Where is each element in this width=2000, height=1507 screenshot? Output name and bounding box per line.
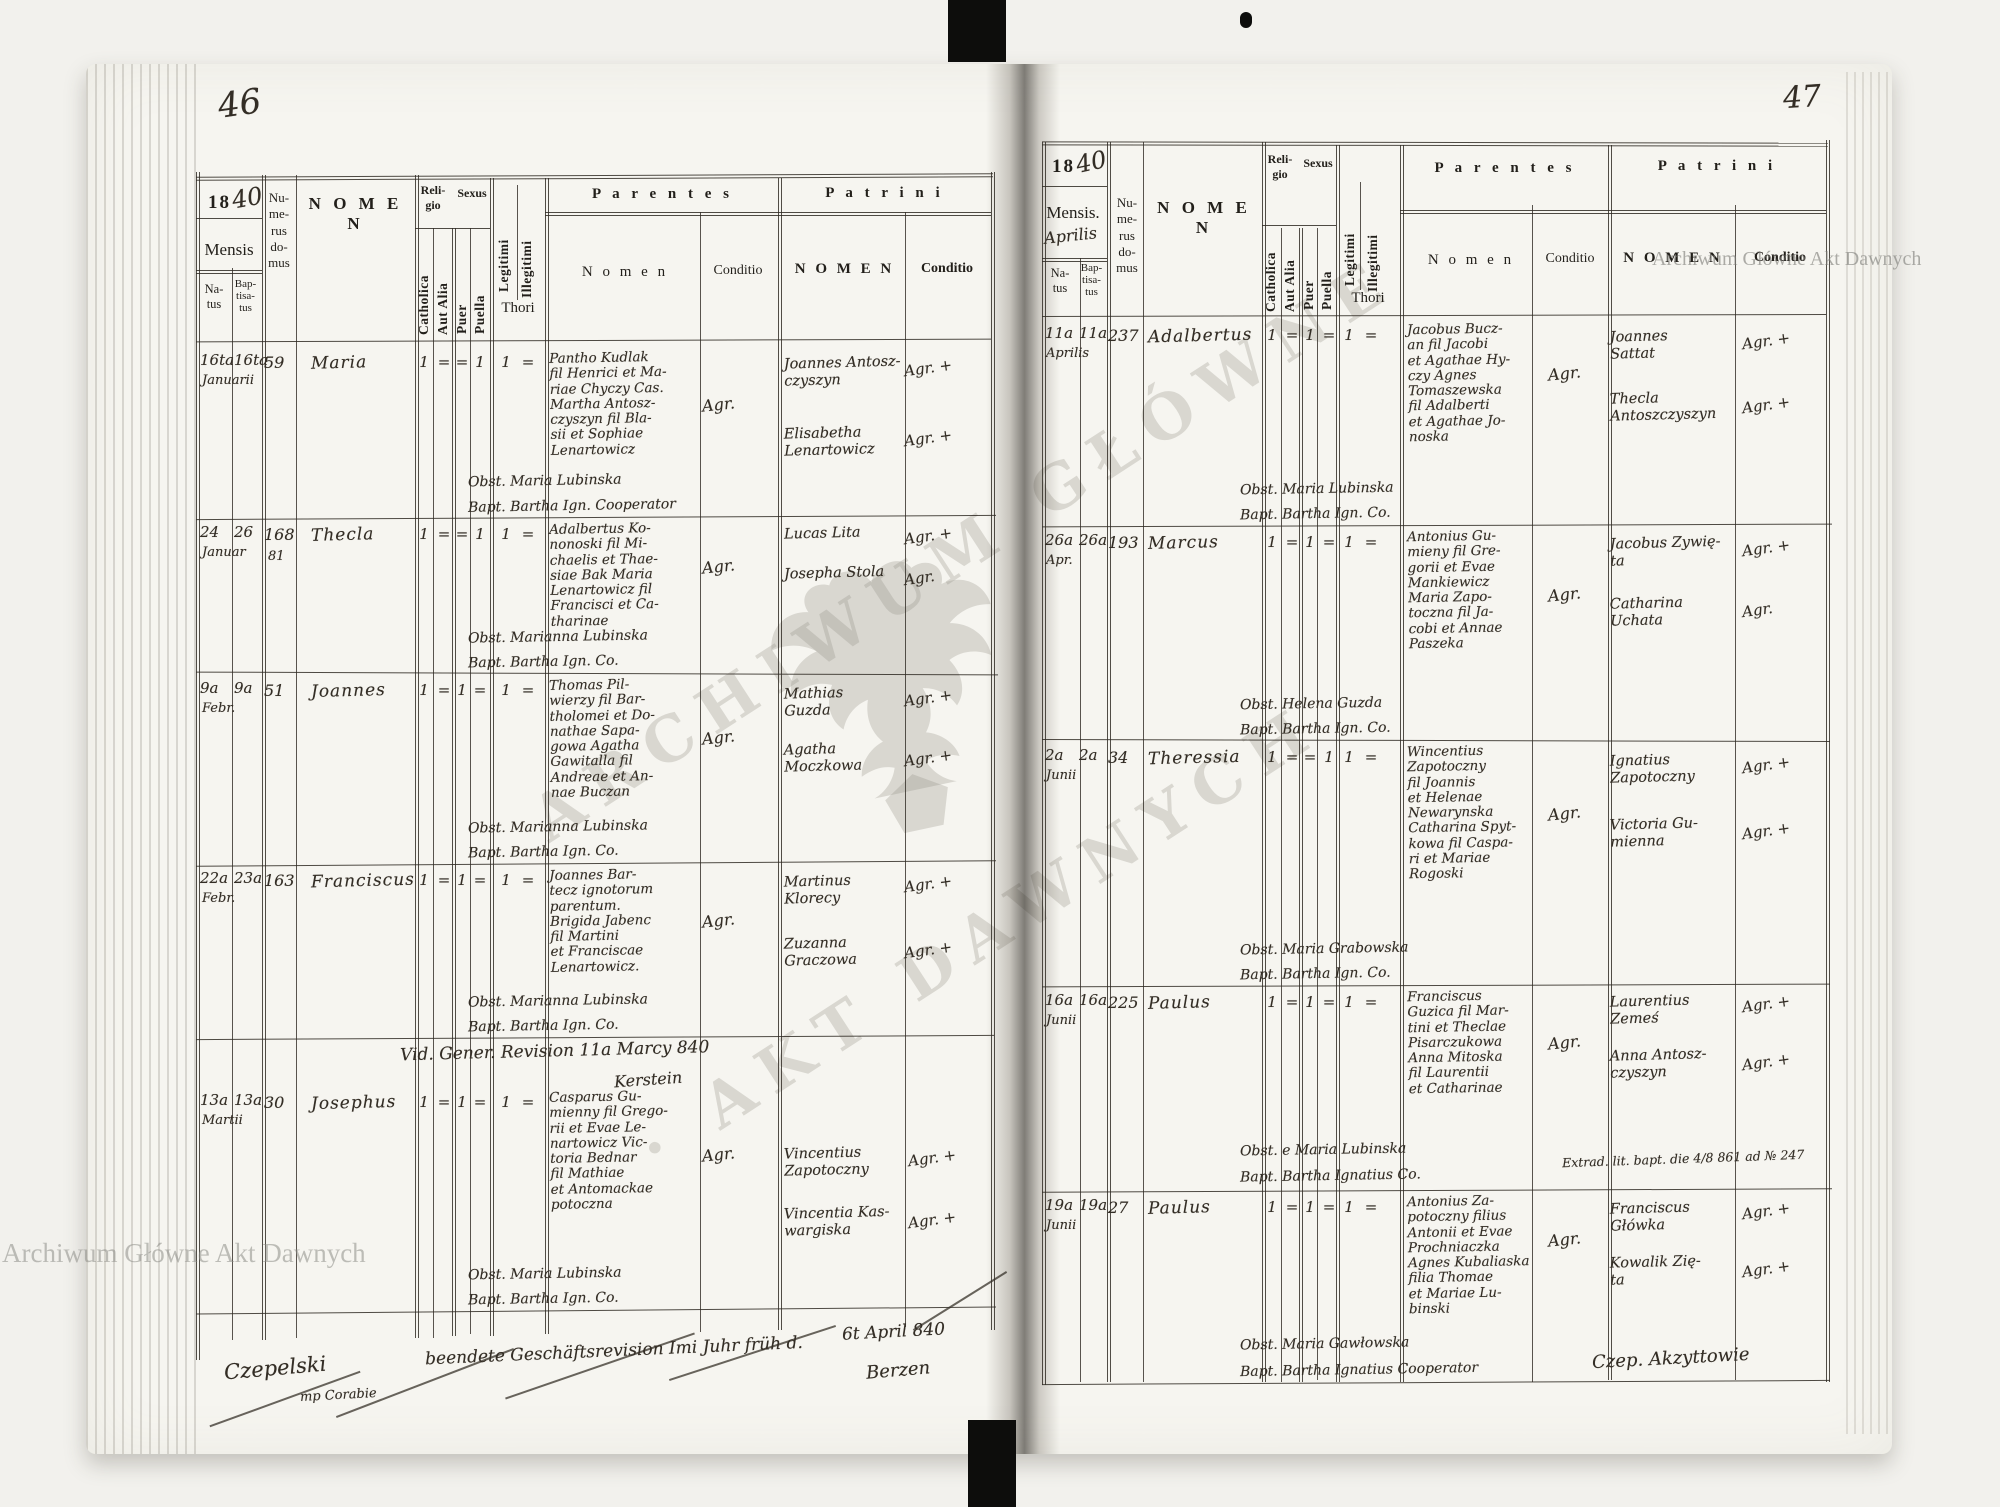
table-rule (517, 185, 518, 300)
month: Januar (202, 545, 246, 560)
month: Junii (1046, 768, 1076, 783)
baptism-date: 2a (1079, 746, 1098, 764)
mark-aut-alia: = (436, 681, 452, 699)
thori-label-right: Thori (1338, 290, 1398, 307)
parents-entry: Jacobus Bucz- an fil Jacobi et Agathae H… (1407, 321, 1547, 445)
mark-catholica: 1 (1264, 993, 1280, 1011)
condition-entry: Agr. (701, 393, 736, 415)
condition-entry: Agr. (701, 555, 736, 577)
table-rule (196, 270, 262, 274)
child-name: Josephus (311, 1092, 397, 1114)
mark-puer: = (1302, 748, 1318, 766)
mark-legitimi: 1 (1341, 748, 1357, 766)
godparent-condition: Agr. + (903, 872, 953, 897)
mark-aut-alia: = (436, 1093, 452, 1111)
sexus-label-right: Sexus (1297, 156, 1339, 171)
baptisatus-label-left: Bap- tisa- tus (230, 278, 261, 314)
baptism-date: 13a (234, 1091, 262, 1109)
natus-label-left: Na- tus (198, 282, 230, 312)
godparent-name: Vincentia Kas- wargiska (784, 1203, 910, 1240)
godparent-condition: Agr. (1741, 599, 1774, 621)
baptizer-note: Bapt. Bartha Ign. Co. (468, 653, 619, 672)
natus-date: 19a (1045, 1196, 1073, 1214)
page-number-left: 46 (215, 81, 263, 127)
mark-puer: 1 (1302, 993, 1318, 1011)
register-row: 26a 26a Apr. 193 Marcus 1 = 1 = 1 = Anto… (1042, 525, 1828, 740)
mark-illegitimi: = (1363, 1198, 1379, 1216)
mark-catholica: 1 (1264, 748, 1280, 766)
mark-puella: = (1321, 326, 1337, 344)
month: Junii (1046, 1218, 1076, 1233)
baptizer-note: Bapt. Bartha Ign. Co. (1240, 965, 1391, 984)
mark-puer: 1 (454, 871, 470, 889)
child-name: Franciscus (311, 870, 415, 893)
aut-alia-label-left: Aut Alia (435, 245, 451, 335)
table-rule (196, 218, 262, 219)
illegitimi-label-left: Illegitimi (519, 186, 535, 298)
mark-puer: = (454, 353, 470, 371)
sexus-label-left: Sexus (452, 186, 492, 201)
midwife-note: Obst. Helena Guzda (1240, 695, 1382, 713)
natus-date: 22a (200, 869, 228, 887)
register-row: 11a 11a Aprilis 237 Adalbertus 1 = 1 = 1… (1042, 318, 1828, 525)
godparent-condition: Agr. + (1741, 1257, 1791, 1282)
mark-puer: 1 (454, 681, 470, 699)
mark-puella: = (1321, 533, 1337, 551)
mark-illegitimi: = (1363, 533, 1379, 551)
natus-date: 13a (200, 1091, 228, 1109)
baptism-date: 23a (234, 869, 262, 887)
natus-date: 2a (1045, 746, 1064, 764)
month: Aprilis (1046, 346, 1089, 361)
table-rule (1400, 210, 1608, 214)
mark-puella: 1 (1321, 748, 1337, 766)
godparent-condition: Agr. (903, 567, 936, 589)
puer-label-right: Puer (1301, 244, 1317, 310)
baptizer-note: Bapt. Bartha Ign. Co. (1240, 505, 1391, 524)
godparent-condition: Agr. + (907, 1146, 957, 1171)
godparent-condition: Agr. + (1741, 536, 1791, 561)
condition-entry: Agr. (1547, 362, 1582, 384)
baptism-date: 26a (1079, 531, 1107, 549)
mark-puella: 1 (472, 525, 488, 543)
godparent-name: Agatha Moczkowa (784, 739, 905, 775)
mark-puella: = (1321, 993, 1337, 1011)
table-rule (415, 228, 490, 229)
midwife-note: Obst. e Maria Lubinska (1240, 1141, 1407, 1160)
house-number: 51 (264, 681, 284, 700)
baptism-date: 26 (234, 523, 253, 541)
midwife-note: Obst. Maria Lubinska (468, 472, 622, 491)
register-row: 9a 9a Febr. 51 Joannes 1 = 1 = 1 = Thoma… (196, 673, 996, 863)
table-rule (1042, 186, 1107, 187)
register-row: 24 26 Januar 168 81 Thecla 1 = = 1 1 = A… (196, 517, 996, 673)
parentes-nomen-label-left: N o m e n (560, 264, 690, 281)
baptizer-note: Bapt. Bartha Ign. Co. (468, 1290, 619, 1309)
godparent-condition: Agr. + (903, 524, 953, 549)
house-number: 27 (1108, 1198, 1128, 1217)
religio-label-right: Reli- gio (1260, 152, 1300, 182)
house-number: 168 (264, 525, 295, 544)
house-number-alt: 81 (268, 549, 285, 564)
house-number: 225 (1108, 993, 1139, 1012)
mark-puer: 1 (1302, 533, 1318, 551)
house-number: 237 (1108, 326, 1139, 345)
godparent-condition: Agr. + (907, 1208, 957, 1233)
parentes-conditio-label-left: Conditio (700, 263, 776, 279)
midwife-note: Obst. Maria Lubinska (468, 1265, 622, 1284)
godparent-condition: Agr. + (903, 746, 953, 771)
mark-illegitimi: = (520, 1093, 536, 1111)
month: Martii (202, 1113, 243, 1128)
godparent-condition: Agr. + (1741, 393, 1791, 418)
nomen-label-right: N O M E N (1148, 198, 1260, 238)
godparent-name: Jacobus Zywię- ta (1610, 533, 1736, 570)
mark-illegitimi: = (520, 353, 536, 371)
godparent-name: Catharina Uchata (1610, 593, 1736, 630)
child-name: Paulus (1148, 992, 1211, 1014)
table-rule (545, 212, 778, 216)
month: Febr. (202, 701, 235, 716)
patrini-label-left: P a t r i n i (782, 185, 987, 202)
parentes-nomen-label-right: N o m e n (1415, 252, 1527, 269)
table-rule (1042, 258, 1107, 262)
baptism-date: 19a (1079, 1196, 1107, 1214)
mark-aut-alia: = (1284, 326, 1300, 344)
mark-catholica: 1 (1264, 326, 1280, 344)
year-printed-right: 18 (1052, 156, 1075, 178)
child-name: Joannes (311, 680, 386, 702)
godparent-name: Martinus Klorecy (784, 871, 905, 907)
patrini-conditio-label-left: Conditio (905, 261, 989, 277)
binding-strap-bottom (968, 1420, 1016, 1507)
mark-aut-alia: = (1284, 993, 1300, 1011)
mark-legitimi: 1 (498, 525, 514, 543)
godparent-name: Mathias Guzda (784, 683, 905, 719)
month: Febr. (202, 891, 235, 906)
archive-watermark-top-right: Archiwum Główne Akt Dawnych (1652, 248, 1921, 271)
mark-illegitimi: = (1363, 993, 1379, 1011)
legitimi-label-right: Legitimi (1342, 182, 1358, 286)
midwife-note: Obst. Maria Gawłowska (1240, 1335, 1410, 1354)
godparent-name: Victoria Gu- mienna (1610, 814, 1736, 851)
mark-aut-alia: = (436, 353, 452, 371)
ink-speck (1240, 12, 1252, 28)
godparent-name: Lucas Lita (784, 523, 904, 543)
mark-puella: = (472, 681, 488, 699)
archive-watermark-bottom-left: Archiwum Główne Akt Dawnych (2, 1238, 366, 1269)
mark-illegitimi: = (1363, 326, 1379, 344)
mark-puella: = (1321, 1198, 1337, 1216)
godparent-condition: Agr. + (903, 426, 953, 451)
mark-puella: = (472, 871, 488, 889)
parentes-label-right: P a r e n t e s (1405, 160, 1605, 177)
mark-puer: 1 (454, 1093, 470, 1111)
mark-aut-alia: = (1284, 748, 1300, 766)
baptizer-note: Bapt. Bartha Ignatius Cooperator (1240, 1360, 1478, 1380)
mark-legitimi: 1 (498, 353, 514, 371)
puella-label-right: Puella (1319, 236, 1335, 310)
mark-legitimi: 1 (498, 681, 514, 699)
natus-label-right: Na- tus (1044, 266, 1076, 296)
godparent-name: Joannes Antosz- czyszyn (784, 353, 905, 389)
numerus-label-right: Nu- me- rus do- mus (1112, 195, 1142, 276)
baptizer-note: Bapt. Bartha Ign. Co. (1240, 720, 1391, 739)
aut-alia-label-right: Aut Alia (1282, 222, 1298, 312)
godparent-name: Ignatius Zapotoczny (1610, 750, 1736, 787)
mark-catholica: 1 (416, 871, 432, 889)
year-printed-left: 18 (208, 192, 231, 214)
godparent-condition: Agr. + (1741, 992, 1791, 1017)
binding-strap-top (948, 0, 1006, 62)
mark-legitimi: 1 (1341, 326, 1357, 344)
baptizer-note: Bapt. Bartha Ignatius Co. (1240, 1166, 1421, 1185)
natus-date: 16ta (200, 351, 234, 369)
register-row: 22a 23a Febr. 163 Franciscus 1 = 1 = 1 =… (196, 863, 996, 1037)
mark-puella: 1 (472, 353, 488, 371)
baptizer-note: Bapt. Bartha Ign. Co. (468, 843, 619, 862)
midwife-note: Obst. Maria Lubinska (1240, 480, 1394, 499)
puer-label-left: Puer (454, 268, 470, 334)
mark-illegitimi: = (520, 525, 536, 543)
mark-puella: = (472, 1093, 488, 1111)
register-row: 2a 2a Junii 34 Theressia 1 = = 1 1 = Win… (1042, 740, 1828, 985)
baptism-date: 16ta (234, 351, 268, 369)
house-number: 34 (1108, 748, 1128, 767)
godparent-name: Kowalik Zię- ta (1610, 1252, 1736, 1289)
mark-illegitimi: = (520, 681, 536, 699)
baptizer-note: Bapt. Bartha Ign. Cooperator (468, 496, 676, 516)
godparent-name: Anna Antosz- czyszyn (1610, 1045, 1736, 1082)
month: Apr. (1046, 553, 1073, 568)
mark-catholica: 1 (416, 1093, 432, 1111)
register-row: 13a 13a Martii 30 Josephus 1 = 1 = 1 = C… (196, 1085, 996, 1310)
natus-date: 26a (1045, 531, 1073, 549)
godparent-name: Franciscus Główka (1610, 1198, 1736, 1235)
godparent-condition: Agr. + (1741, 1050, 1791, 1075)
month: Junii (1046, 1013, 1076, 1028)
table-rule (1360, 182, 1361, 290)
thori-label-left: Thori (492, 300, 544, 317)
mark-legitimi: 1 (498, 1093, 514, 1111)
godparent-condition: Agr. + (903, 938, 953, 963)
natus-date: 24 (200, 523, 219, 541)
mark-illegitimi: = (1363, 748, 1379, 766)
condition-entry: Agr. (1547, 583, 1582, 605)
puella-label-left: Puella (472, 260, 488, 334)
numerus-label-left: Nu- me- rus do- mus (264, 190, 294, 271)
illegitimi-label-right: Illegitimi (1365, 180, 1381, 292)
parentes-conditio-label-right: Conditio (1533, 251, 1607, 267)
natus-date: 9a (200, 679, 219, 697)
mensis-label-right: Mensis. (1042, 203, 1104, 223)
mark-catholica: 1 (416, 681, 432, 699)
parents-entry: Antonius Za- potoczny filius Antonii et … (1407, 1193, 1549, 1317)
baptism-date: 9a (234, 679, 253, 697)
mark-catholica: 1 (416, 353, 432, 371)
godparent-condition: Agr. + (1741, 753, 1791, 778)
religio-label-left: Reli- gio (413, 183, 453, 213)
page-number-right: 47 (1782, 79, 1823, 117)
parents-entry: Antonius Gu- mieny fil Gre- gorii et Eva… (1407, 528, 1547, 652)
register-scan: ARCHIWUM GŁÓWNE · AKT DAWNYCH 46 47 18 4… (0, 0, 2000, 1507)
child-name: Thecla (311, 524, 375, 546)
nomen-label-left: N O M E N (298, 194, 413, 234)
child-name: Marcus (1148, 532, 1219, 554)
midwife-note: Obst. Marianna Lubinska (468, 627, 648, 646)
parentes-label-left: P a r e n t e s (555, 186, 770, 203)
year-hand-left: 40 (230, 182, 265, 215)
mark-puer: 1 (1302, 1198, 1318, 1216)
midwife-note: Obst. Maria Grabowska (1240, 940, 1409, 959)
register-row: 16ta 16ta Januarii 59 Maria 1 = = 1 1 = … (196, 345, 996, 517)
godparent-name: Thecla Antoszczyszyn (1610, 388, 1736, 425)
table-rule (1262, 225, 1336, 226)
godparent-name: Elisabetha Lenartowicz (784, 423, 905, 459)
godparent-condition: Agr. + (1741, 1199, 1791, 1224)
mark-legitimi: 1 (498, 871, 514, 889)
godparent-condition: Agr. + (1741, 329, 1791, 354)
mark-catholica: 1 (416, 525, 432, 543)
mark-legitimi: 1 (1341, 1198, 1357, 1216)
condition-entry: Agr. (701, 726, 736, 748)
patrini-label-right: P a t r i n i (1612, 158, 1822, 175)
mark-aut-alia: = (436, 525, 452, 543)
mensis-label-left: Mensis (198, 240, 260, 260)
godparent-name: Joannes Sattat (1610, 326, 1736, 363)
godparent-condition: Agr. + (903, 356, 953, 381)
page-stack-edge-right (1846, 72, 1892, 1434)
condition-entry: Agr. (1547, 802, 1582, 824)
godparent-name: Zuzanna Graczowa (784, 933, 905, 969)
condition-entry: Agr. (1547, 1031, 1582, 1053)
legitimi-label-left: Legitimi (496, 188, 512, 292)
godparent-condition: Agr. + (1741, 819, 1791, 844)
parents-entry: Franciscus Guzica fil Mar- tini et Thecl… (1407, 988, 1547, 1097)
mark-aut-alia: = (1284, 533, 1300, 551)
house-number: 59 (264, 353, 284, 372)
natus-date: 11a (1045, 324, 1073, 342)
month: Januarii (202, 373, 254, 388)
godparent-name: Josepha Stola (784, 563, 904, 583)
condition-entry: Agr. (701, 1143, 736, 1165)
house-number: 163 (264, 871, 295, 890)
mark-legitimi: 1 (1341, 993, 1357, 1011)
mark-catholica: 1 (1264, 1198, 1280, 1216)
mark-illegitimi: = (520, 871, 536, 889)
mark-legitimi: 1 (1341, 533, 1357, 551)
natus-date: 16a (1045, 991, 1073, 1009)
mark-aut-alia: = (1284, 1198, 1300, 1216)
house-number: 30 (264, 1093, 284, 1112)
baptism-date: 11a (1079, 324, 1107, 342)
godparent-name: Vincentius Zapotoczny (784, 1143, 910, 1180)
mark-aut-alia: = (436, 871, 452, 889)
baptizer-note: Bapt. Bartha Ign. Co. (468, 1017, 619, 1036)
midwife-note: Obst. Marianna Lubinska (468, 991, 648, 1010)
condition-entry: Agr. (701, 909, 736, 931)
condition-entry: Agr. (1547, 1228, 1582, 1250)
baptism-date: 16a (1079, 991, 1107, 1009)
child-name: Paulus (1148, 1197, 1211, 1219)
godparent-condition: Agr. + (903, 686, 953, 711)
mark-puer: = (454, 525, 470, 543)
table-rule (778, 212, 991, 216)
table-rule (1608, 210, 1826, 214)
godparent-name: Laurentius Zemeś (1610, 991, 1736, 1028)
child-name: Theressia (1148, 747, 1241, 769)
midwife-note: Obst. Marianna Lubinska (468, 817, 648, 836)
mark-catholica: 1 (1264, 533, 1280, 551)
patrini-nomen-label-left: N O M E N (786, 261, 903, 278)
child-name: Maria (311, 352, 368, 373)
mark-puer: 1 (1302, 326, 1318, 344)
house-number: 193 (1108, 533, 1139, 552)
parents-entry: Wincentius Zapotoczny fil Joannis et Hel… (1407, 743, 1547, 883)
child-name: Adalbertus (1148, 325, 1253, 348)
